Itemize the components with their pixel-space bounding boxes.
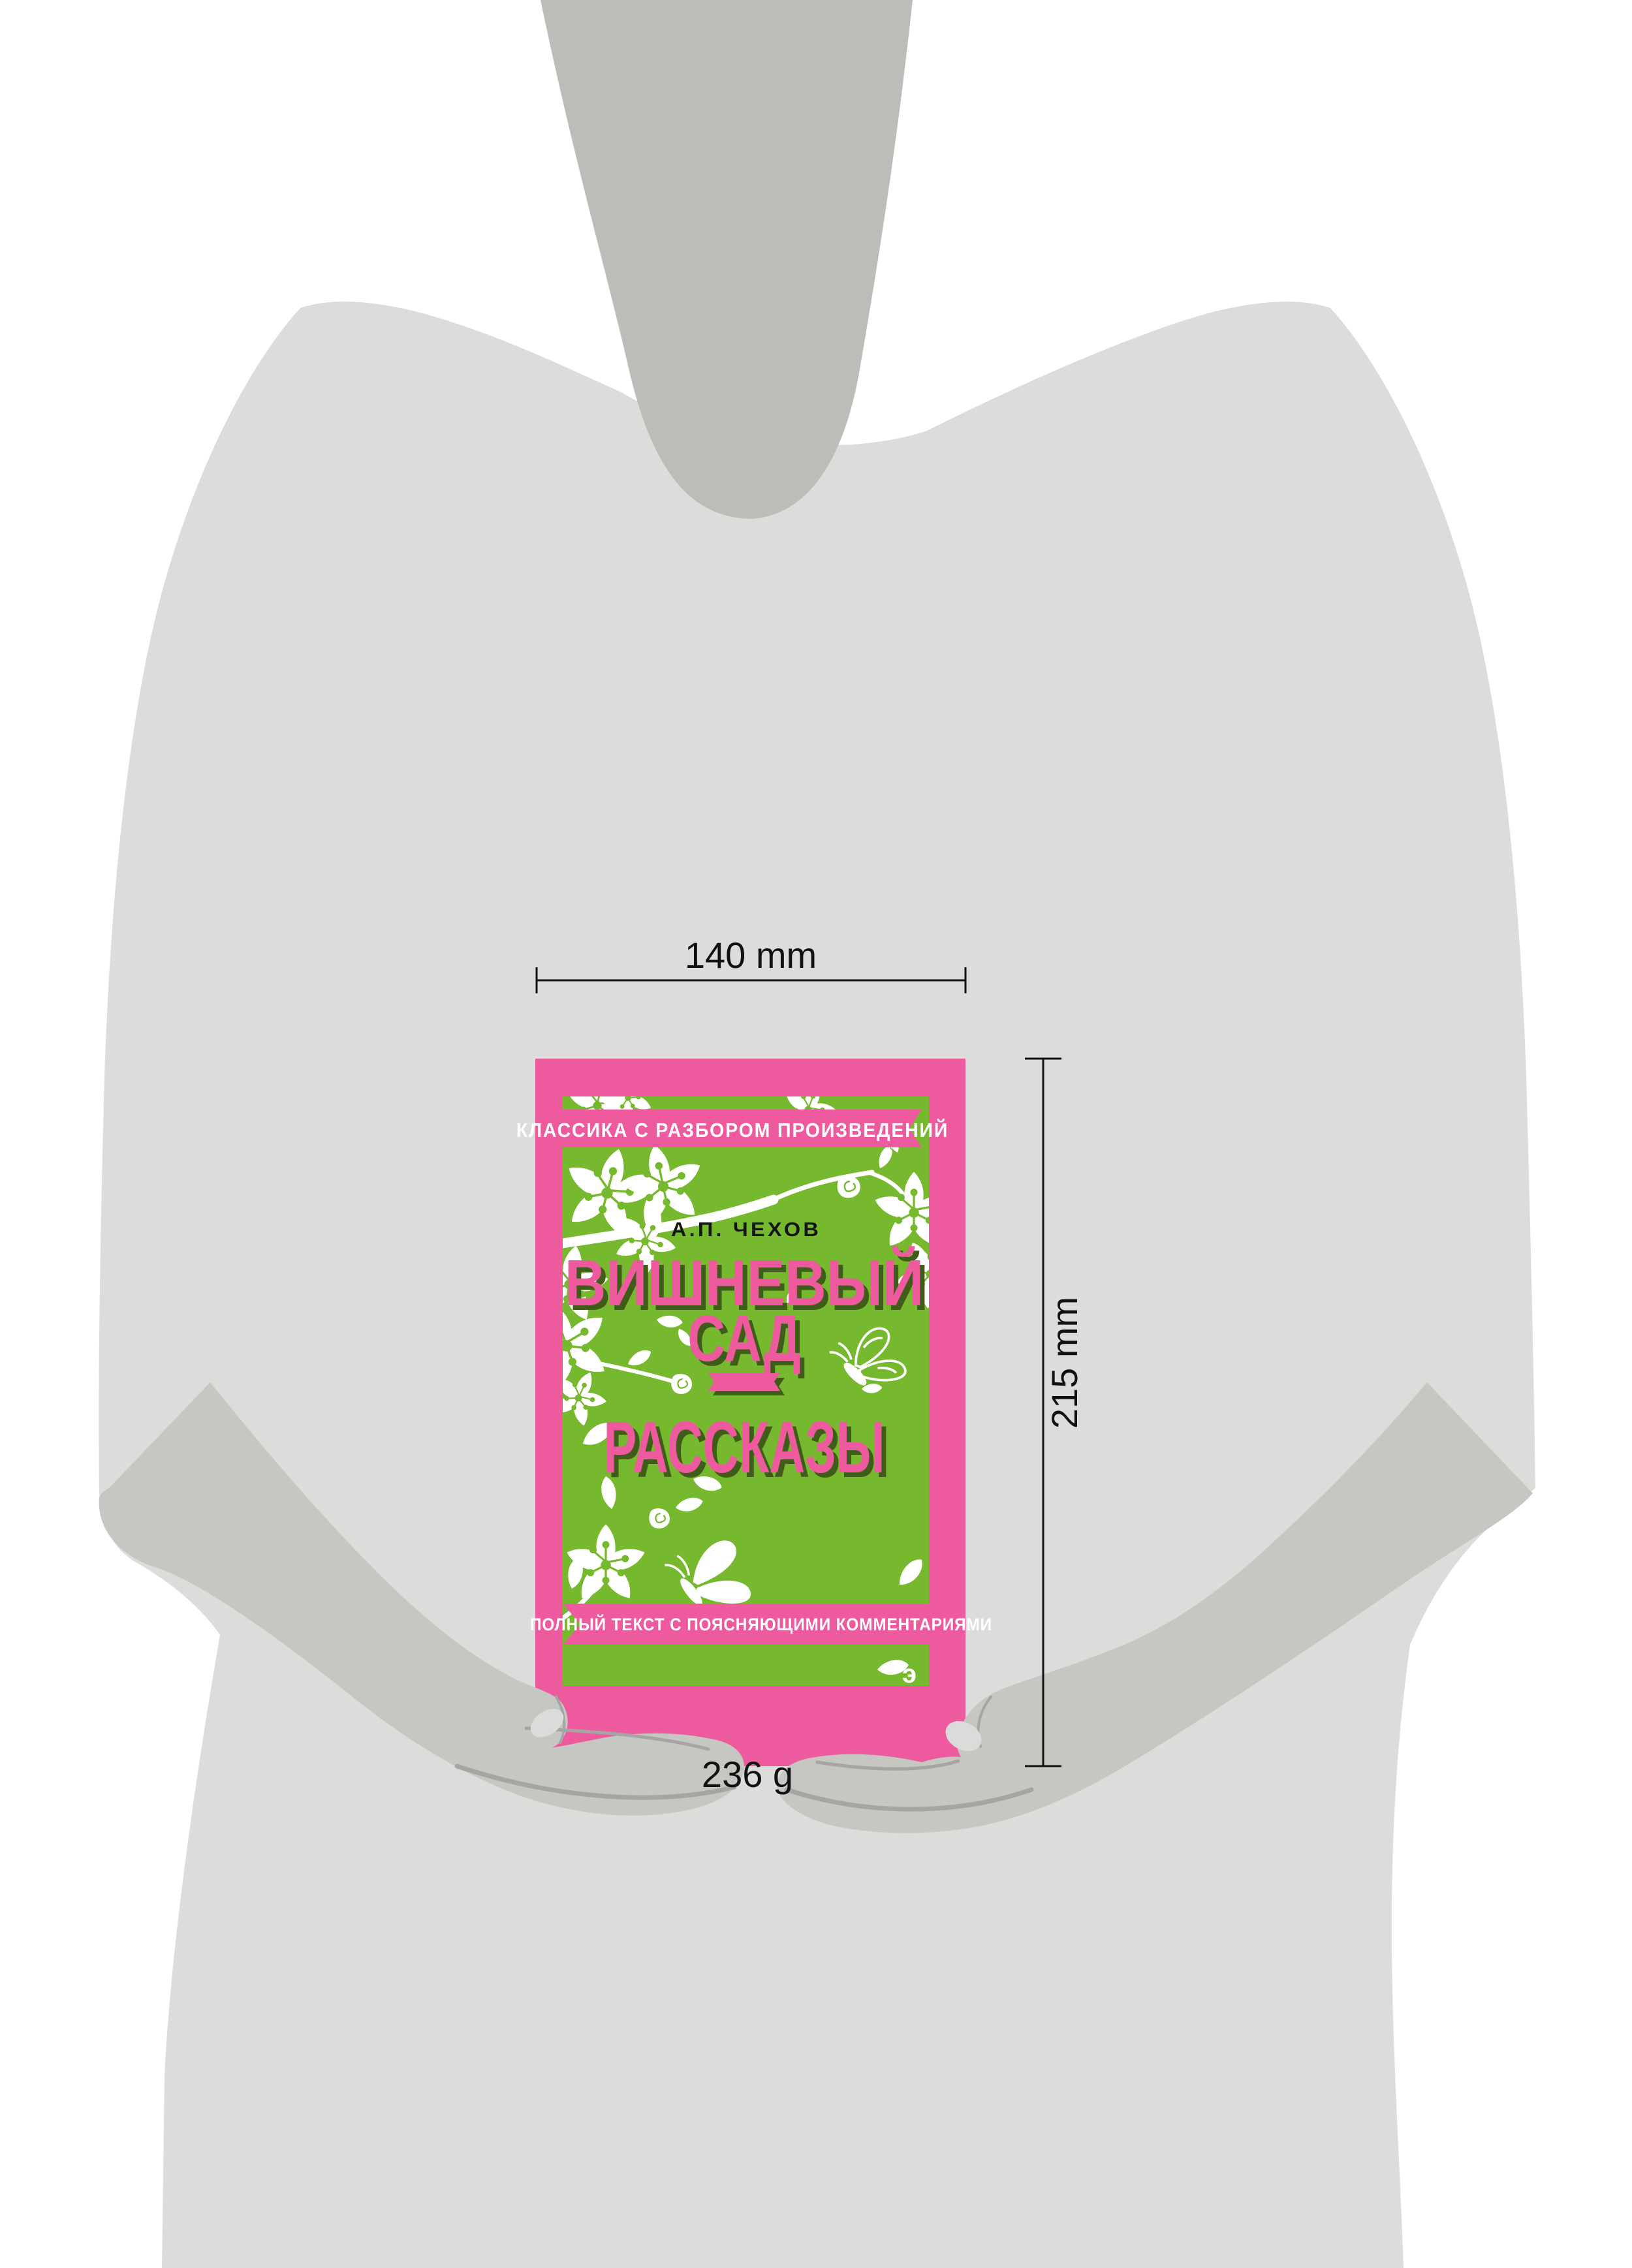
width-label: 140 mm [685,935,817,976]
title-line2: САД [687,1303,801,1376]
scene: КЛАССИКА С РАЗБОРОМ ПРОИЗВЕДЕНИЙ А.П. ЧЕ… [0,0,1632,2268]
title-line3: РАССКАЗЫ [604,1406,885,1488]
series-banner-text: КЛАССИКА С РАЗБОРОМ ПРОИЗВЕДЕНИЙ [516,1119,949,1142]
weight-label: 236 g [702,1754,793,1795]
height-label: 215 mm [1044,1297,1085,1429]
publisher-logo-icon: э [902,1660,917,1688]
bottom-banner: ПОЛНЫЙ ТЕКСТ С ПОЯСНЯЮЩИМИ КОММЕНТАРИЯМИ [530,1604,992,1645]
book-cover: КЛАССИКА С РАЗБОРОМ ПРОИЗВЕДЕНИЙ А.П. ЧЕ… [507,1059,992,1766]
bottom-banner-text: ПОЛНЫЙ ТЕКСТ С ПОЯСНЯЮЩИМИ КОММЕНТАРИЯМИ [530,1614,992,1635]
title-divider [708,1373,780,1391]
author-text: А.П. ЧЕХОВ [671,1218,821,1241]
product-dimension-visualization: КЛАССИКА С РАЗБОРОМ ПРОИЗВЕДЕНИЙ А.П. ЧЕ… [0,0,1632,2268]
series-ribbon: КЛАССИКА С РАЗБОРОМ ПРОИЗВЕДЕНИЙ [516,1110,949,1147]
